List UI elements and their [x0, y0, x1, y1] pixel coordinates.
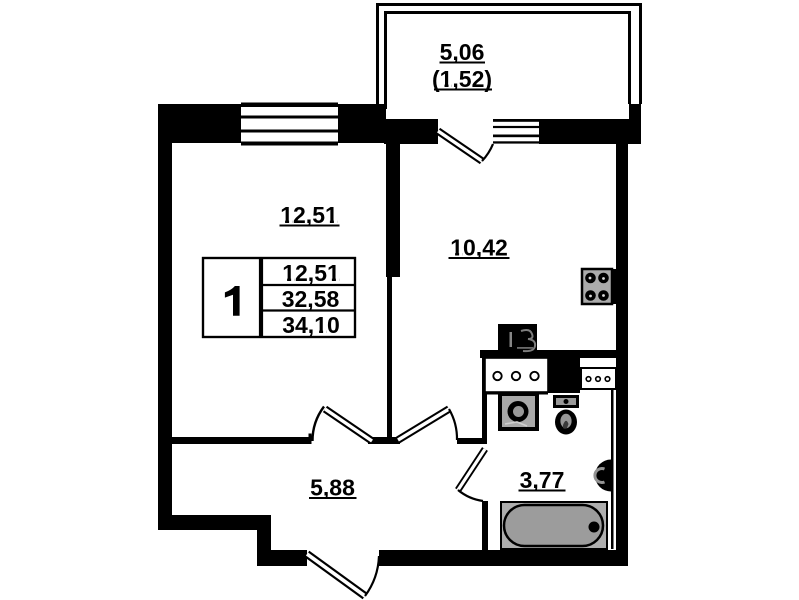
svg-text:5,06: 5,06 [440, 39, 485, 65]
svg-text:34,10: 34,10 [282, 312, 340, 338]
svg-text:12,51: 12,51 [280, 202, 338, 228]
svg-text:3,77: 3,77 [520, 467, 565, 493]
svg-text:10,42: 10,42 [450, 235, 508, 261]
svg-text:12,51: 12,51 [282, 260, 340, 286]
svg-text:32,58: 32,58 [282, 286, 340, 312]
svg-text:(1,52): (1,52) [432, 66, 492, 92]
svg-text:5,88: 5,88 [310, 475, 355, 501]
